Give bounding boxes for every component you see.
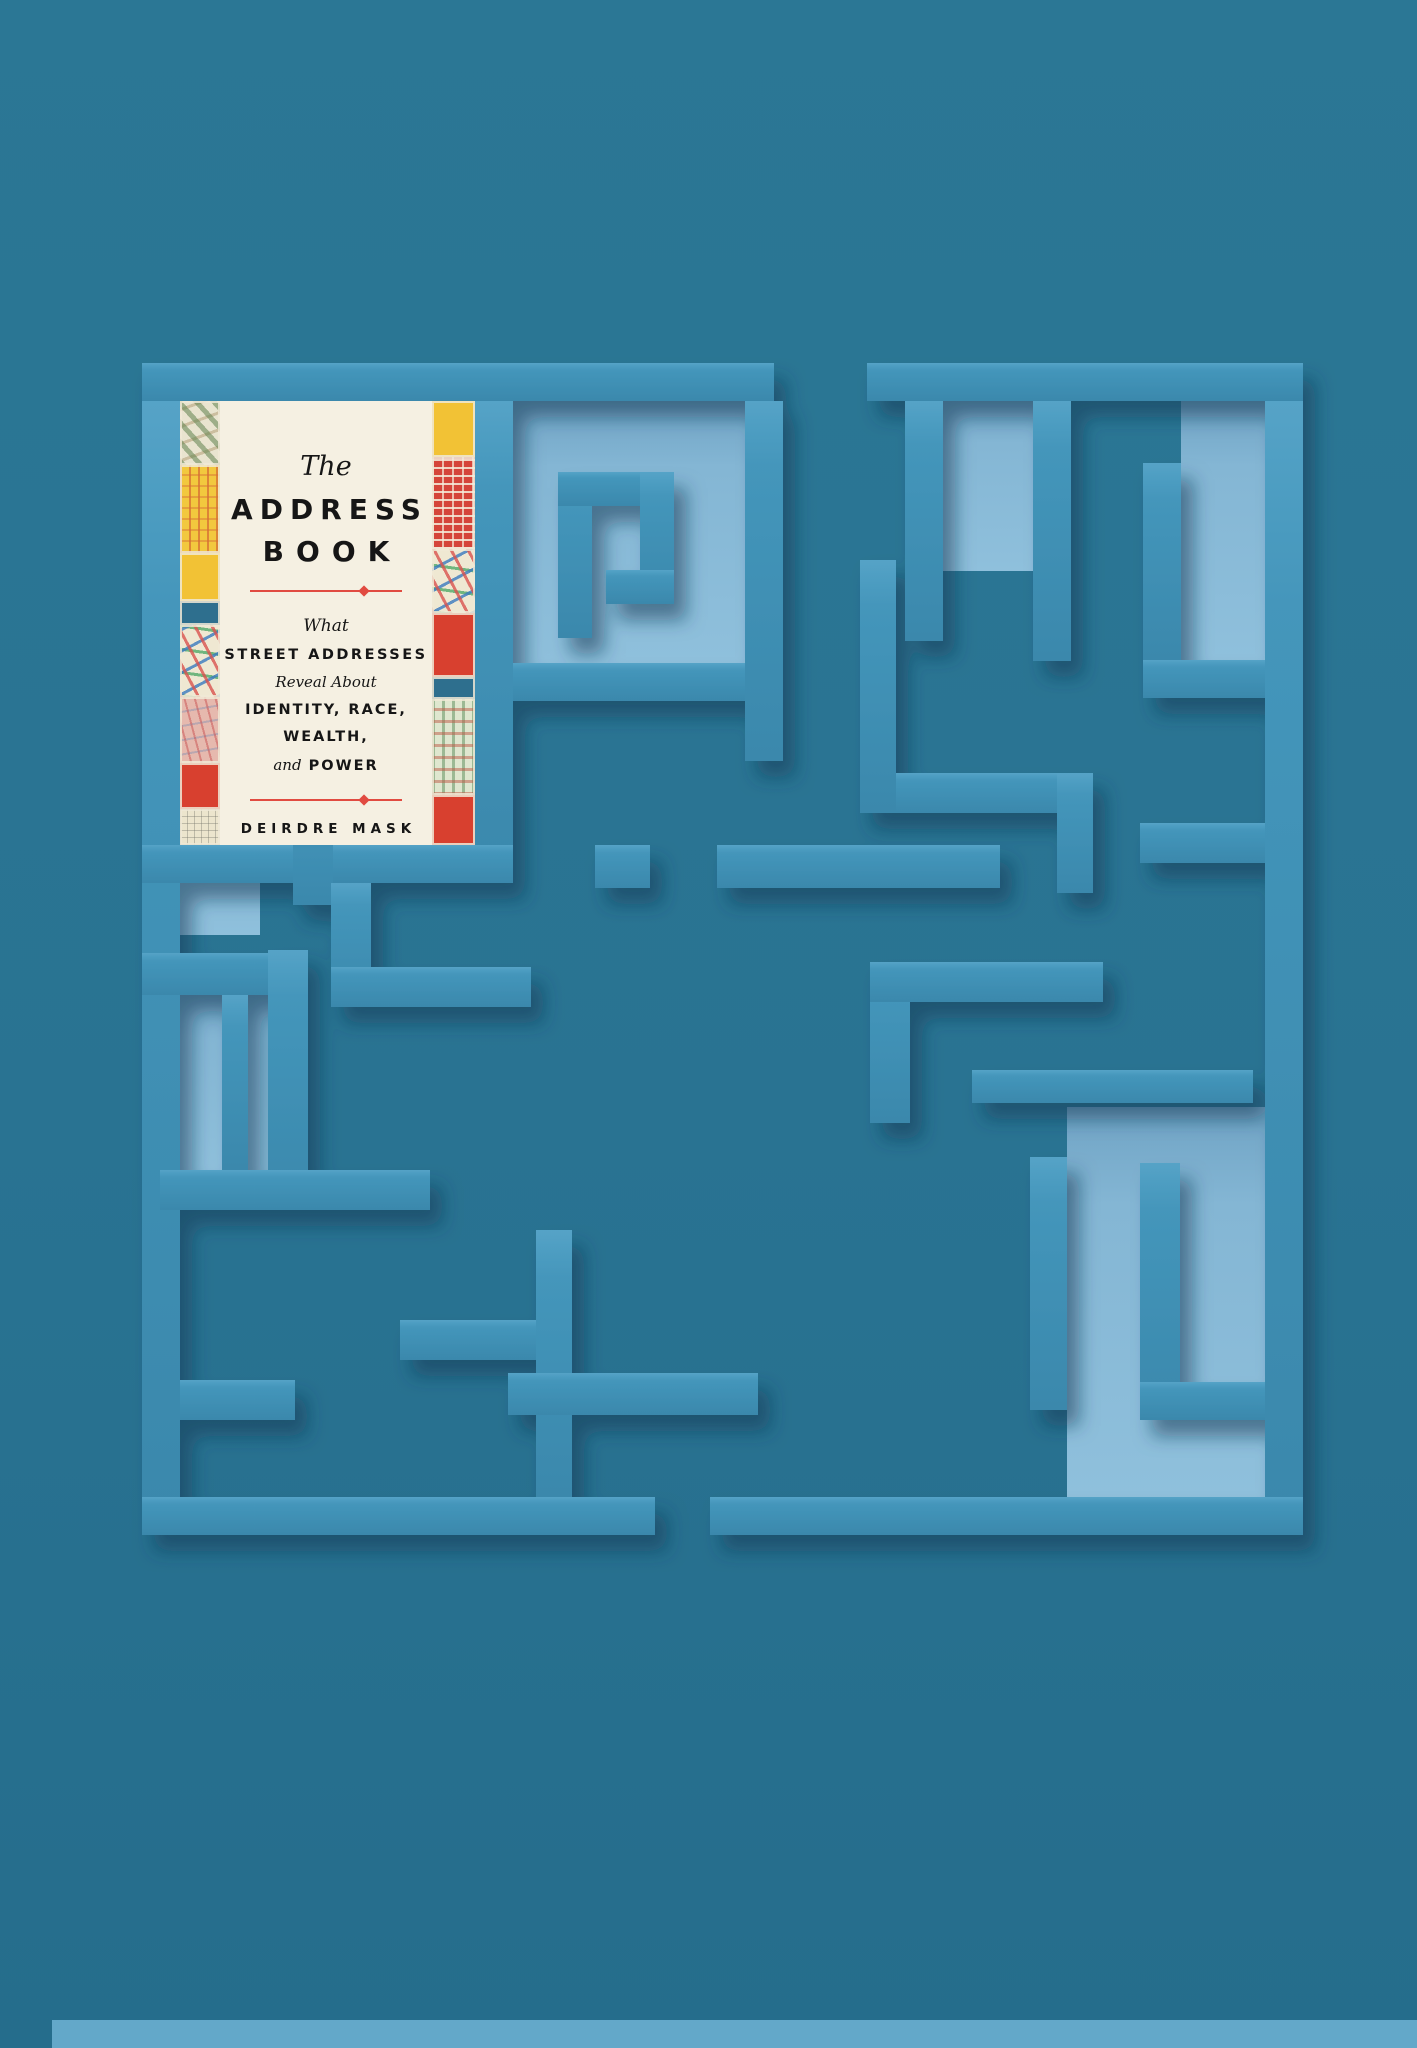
book-author: DEIRDRE MASK	[236, 823, 416, 837]
map-tile	[180, 553, 220, 601]
map-tile	[180, 763, 220, 809]
book-subtitle-wealth: WEALTH,	[283, 730, 369, 745]
map-tile	[432, 699, 475, 795]
poster-scene: The ADDRESS BOOK What STREET ADDRESSES R…	[0, 0, 1417, 2048]
divider-diamond-icon	[358, 585, 369, 596]
map-tile	[180, 401, 220, 465]
book-title-line1: ADDRESS	[224, 496, 428, 524]
map-tile	[432, 549, 475, 613]
map-tile	[432, 457, 475, 549]
book-subtitle-power-word: POWER	[309, 758, 379, 774]
map-tile	[432, 677, 475, 699]
book-subtitle-street: STREET ADDRESSES	[224, 648, 427, 663]
book-subtitle-power: and POWER	[273, 758, 378, 774]
book-title-line2: BOOK	[251, 538, 402, 566]
book-cover-panel: The ADDRESS BOOK What STREET ADDRESSES R…	[220, 401, 432, 845]
divider-rule	[250, 799, 402, 801]
book-subtitle-what: What	[303, 618, 348, 635]
book-subtitle-identity: IDENTITY, RACE,	[245, 703, 407, 718]
book-subtitle-and: and	[273, 756, 301, 774]
book-subtitle-reveal: Reveal About	[275, 675, 376, 690]
divider-diamond-icon	[358, 794, 369, 805]
bottom-accent-band	[52, 2020, 1417, 2048]
book-title-prefix: The	[300, 453, 351, 480]
map-tile	[180, 601, 220, 625]
map-tile	[432, 401, 475, 457]
book-cover: The ADDRESS BOOK What STREET ADDRESSES R…	[180, 401, 475, 845]
map-tile	[180, 625, 220, 697]
map-tile	[180, 465, 220, 553]
divider-rule	[250, 590, 402, 592]
map-collage-left	[180, 401, 220, 845]
map-tile	[432, 795, 475, 845]
map-collage-right	[432, 401, 475, 845]
map-tile	[180, 809, 220, 845]
map-tile	[180, 697, 220, 763]
map-tile	[432, 613, 475, 677]
